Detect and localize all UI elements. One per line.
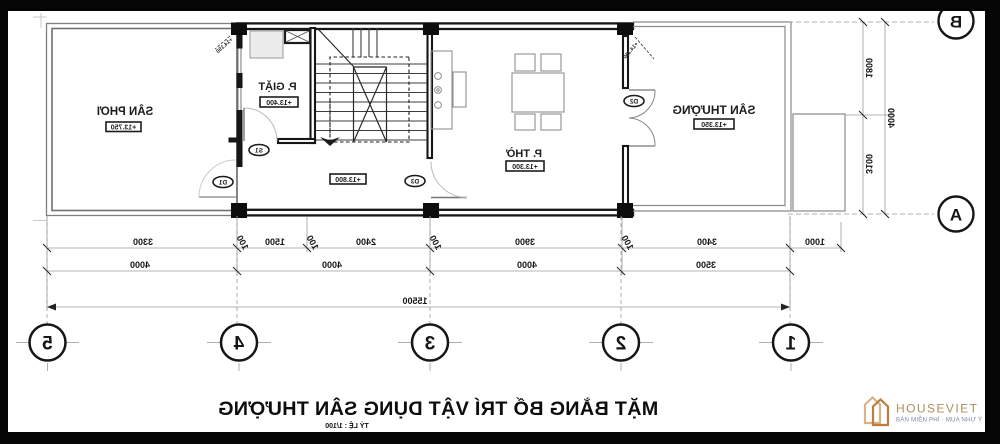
svg-text:SÂN THƯỢNG: SÂN THƯỢNG [673,102,756,117]
svg-text:MẶT BẰNG BỐ TRÍ VẬT DỤNG SÂN T: MẶT BẰNG BỐ TRÍ VẬT DỤNG SÂN THƯỢNG [218,396,659,420]
svg-text:3900: 3900 [515,237,535,247]
svg-text:A: A [950,206,962,225]
svg-text:S1: S1 [255,148,263,155]
svg-text:3300: 3300 [133,237,153,247]
svg-text:D1: D1 [218,180,227,187]
svg-text:TỶ LỆ : 1/100: TỶ LỆ : 1/100 [325,421,369,430]
svg-text:3100: 3100 [864,154,874,174]
svg-text:3400: 3400 [697,237,717,247]
svg-text:B: B [950,13,962,32]
svg-text:4000: 4000 [517,260,537,270]
svg-text:SÂN PHƠI: SÂN PHƠI [97,105,153,118]
svg-text:+13.350: +13.350 [701,122,727,129]
svg-text:2: 2 [616,334,627,355]
svg-text:HOUSEVIET: HOUSEVIET [896,402,978,416]
svg-text:+13.800: +13.800 [335,177,361,184]
svg-text:1000: 1000 [805,237,825,247]
svg-text:3: 3 [425,334,436,355]
svg-text:15500: 15500 [402,296,427,306]
svg-text:D2: D2 [629,99,638,106]
svg-text:P. GIẶT: P. GIẶT [258,80,297,93]
svg-text:4000: 4000 [886,108,896,128]
svg-text:3500: 3500 [696,260,716,270]
svg-text:4000: 4000 [322,260,342,270]
svg-text:D3: D3 [410,179,419,186]
svg-text:4: 4 [233,334,244,355]
svg-text:BÁN MIỄN PHÍ · MUA NHƯ Ý: BÁN MIỄN PHÍ · MUA NHƯ Ý [896,417,982,424]
svg-text:4000: 4000 [130,260,150,270]
svg-text:+13.300: +13.300 [512,164,538,171]
svg-text:5: 5 [42,334,53,355]
svg-text:2400: 2400 [356,237,376,247]
svg-text:+13.400: +13.400 [266,100,292,107]
svg-text:1500: 1500 [265,237,285,247]
svg-text:1800: 1800 [864,58,874,78]
svg-text:1: 1 [785,334,796,355]
svg-text:P. THỜ: P. THỜ [505,147,542,160]
svg-text:+13.750: +13.750 [111,125,137,132]
